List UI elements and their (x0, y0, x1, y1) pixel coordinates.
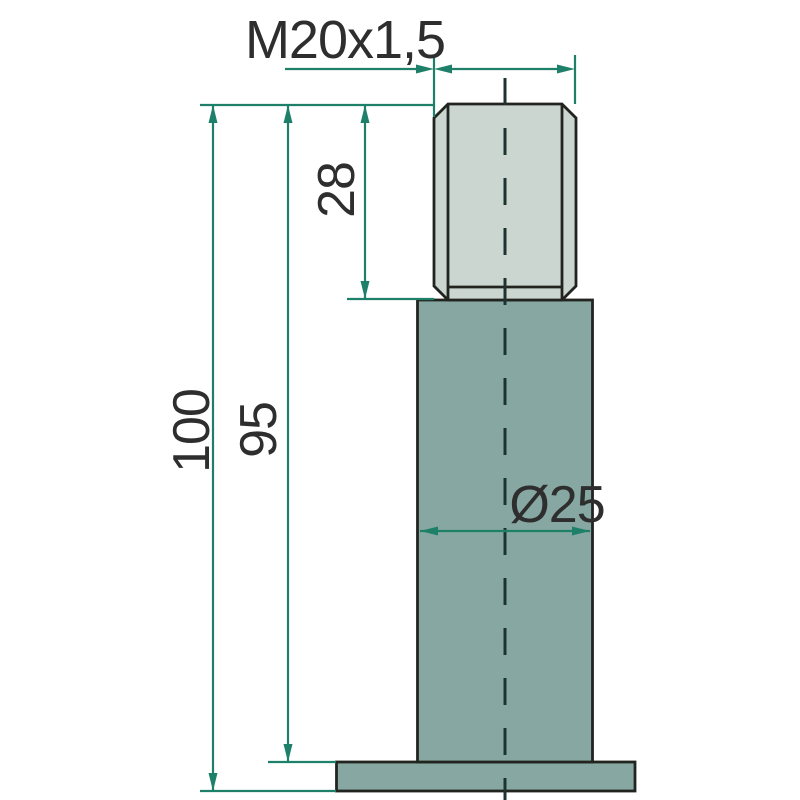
arrow-right-icon (557, 65, 575, 74)
technical-drawing-svg: M20x1,5 28 100 95 Ø25 (0, 0, 800, 800)
label-overall-length: 100 (163, 389, 221, 473)
arrow-down-icon (284, 744, 293, 762)
label-thread-spec: M20x1,5 (245, 10, 445, 70)
arrow-up-icon (209, 105, 218, 123)
label-body-length: 95 (230, 402, 288, 458)
label-diameter: Ø25 (509, 476, 604, 534)
label-thread-length: 28 (308, 162, 366, 218)
arrow-up-icon (361, 105, 370, 123)
part-geometry (337, 104, 636, 791)
arrow-down-icon (361, 281, 370, 299)
arrow-up-icon (284, 105, 293, 123)
drawing-canvas: M20x1,5 28 100 95 Ø25 (0, 0, 800, 800)
flange-base (337, 762, 636, 791)
arrow-down-icon (209, 773, 218, 791)
